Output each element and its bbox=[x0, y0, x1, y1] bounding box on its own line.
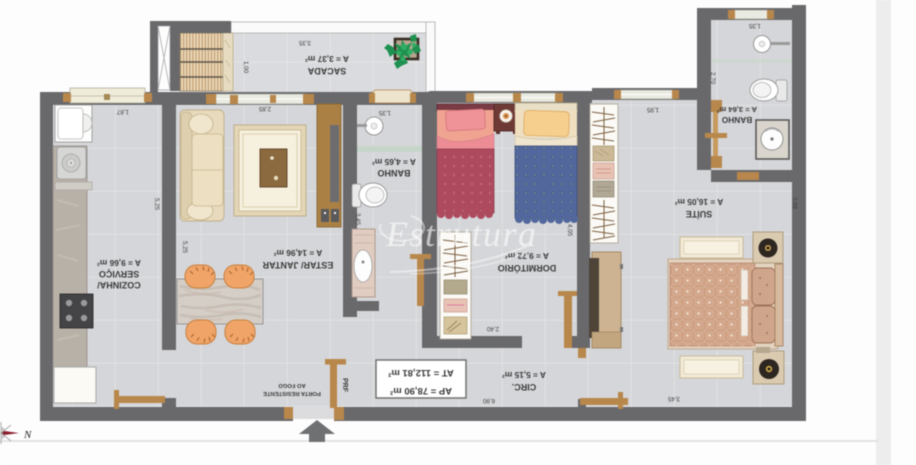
svg-text:AP = 78,90 m²: AP = 78,90 m² bbox=[390, 385, 452, 396]
svg-text:2,40: 2,40 bbox=[486, 325, 499, 332]
svg-text:A = 4,65 m²: A = 4,65 m² bbox=[372, 157, 416, 167]
svg-text:AT = 112,81 m²: AT = 112,81 m² bbox=[388, 367, 454, 378]
svg-text:SERVIÇO: SERVIÇO bbox=[99, 269, 139, 279]
svg-text:3,88: 3,88 bbox=[791, 197, 798, 210]
svg-text:N: N bbox=[23, 429, 32, 441]
svg-text:2,70: 2,70 bbox=[709, 72, 716, 85]
svg-text:1,87: 1,87 bbox=[116, 108, 129, 115]
svg-text:1,95: 1,95 bbox=[646, 106, 659, 113]
svg-text:A = 3,37 m²: A = 3,37 m² bbox=[305, 54, 349, 64]
svg-text:2,85: 2,85 bbox=[258, 105, 271, 112]
svg-text:A = 3,64 m²: A = 3,64 m² bbox=[717, 105, 757, 114]
svg-text:6,90: 6,90 bbox=[482, 397, 495, 404]
svg-text:Estrutura: Estrutura bbox=[385, 214, 538, 254]
svg-text:COZINHA/: COZINHA/ bbox=[97, 280, 141, 290]
svg-text:ESTAR/ JANTAR: ESTAR/ JANTAR bbox=[262, 260, 333, 270]
svg-text:5,25: 5,25 bbox=[181, 241, 188, 254]
svg-text:A = 9,66 m²: A = 9,66 m² bbox=[97, 258, 141, 268]
svg-text:1,35: 1,35 bbox=[748, 22, 761, 29]
svg-text:BANHO: BANHO bbox=[721, 115, 752, 125]
svg-text:PORTA RESISTENTE: PORTA RESISTENTE bbox=[263, 390, 321, 396]
svg-text:5,25: 5,25 bbox=[153, 198, 160, 211]
svg-text:CIRC.: CIRC. bbox=[512, 382, 537, 392]
svg-text:SUÍTE: SUÍTE bbox=[686, 209, 713, 219]
svg-text:A = 16,05 m²: A = 16,05 m² bbox=[675, 197, 724, 207]
svg-text:4,05: 4,05 bbox=[566, 224, 573, 237]
svg-text:DORMITÓRIO: DORMITÓRIO bbox=[498, 263, 557, 274]
svg-text:AO FOGO: AO FOGO bbox=[278, 382, 306, 388]
svg-text:SACADA: SACADA bbox=[307, 66, 346, 76]
svg-text:A = 5,15 m²: A = 5,15 m² bbox=[502, 370, 546, 380]
svg-text:3,35: 3,35 bbox=[298, 39, 311, 46]
svg-text:1,35: 1,35 bbox=[378, 109, 391, 116]
svg-text:BANHO: BANHO bbox=[378, 168, 411, 178]
svg-text:PRF: PRF bbox=[341, 378, 348, 393]
svg-text:3,45: 3,45 bbox=[354, 213, 361, 226]
svg-text:A = 14,96 m²: A = 14,96 m² bbox=[274, 248, 323, 258]
svg-text:3,45: 3,45 bbox=[667, 395, 680, 402]
svg-text:1,00: 1,00 bbox=[242, 61, 249, 74]
